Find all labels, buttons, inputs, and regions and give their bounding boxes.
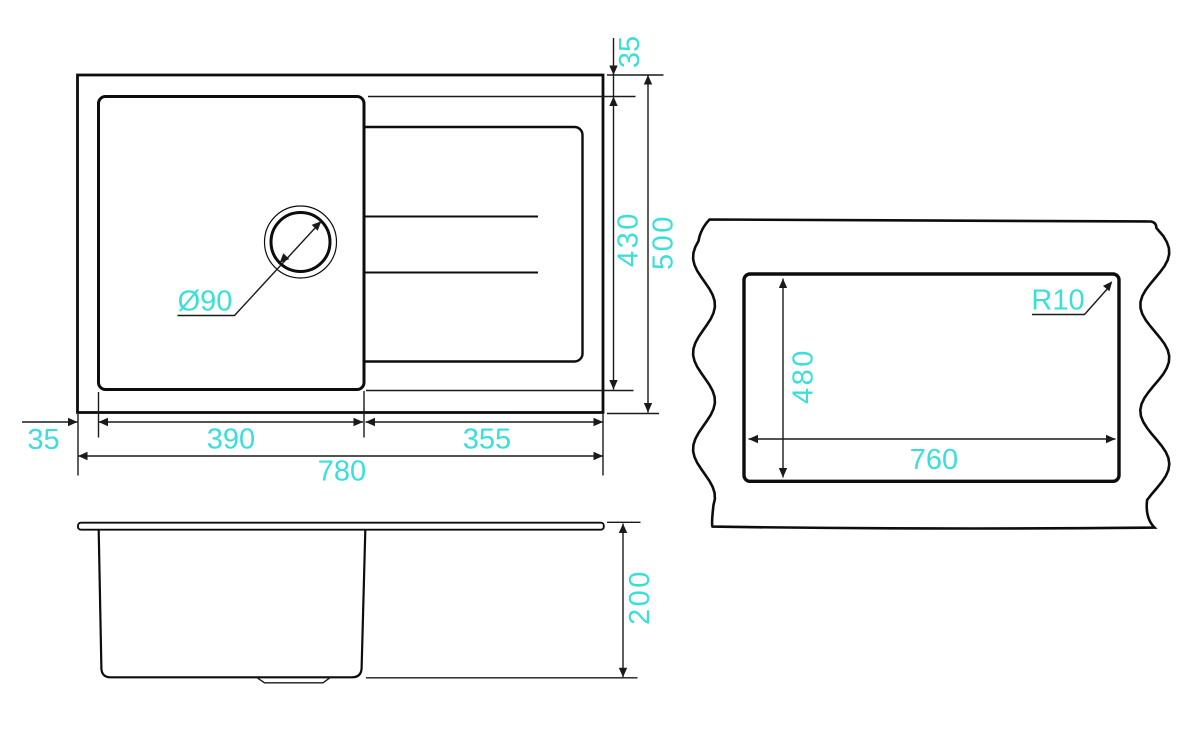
svg-text:480: 480: [788, 348, 820, 404]
svg-text:355: 355: [463, 424, 511, 456]
svg-text:760: 760: [910, 444, 958, 476]
svg-text:Ø90: Ø90: [178, 286, 233, 318]
svg-text:780: 780: [318, 456, 366, 488]
svg-text:R10: R10: [1031, 285, 1084, 317]
svg-text:200: 200: [624, 569, 656, 625]
svg-text:35: 35: [27, 424, 59, 456]
svg-text:35: 35: [614, 36, 646, 68]
svg-text:390: 390: [207, 424, 255, 456]
svg-text:500: 500: [648, 214, 680, 270]
svg-text:430: 430: [613, 211, 645, 267]
